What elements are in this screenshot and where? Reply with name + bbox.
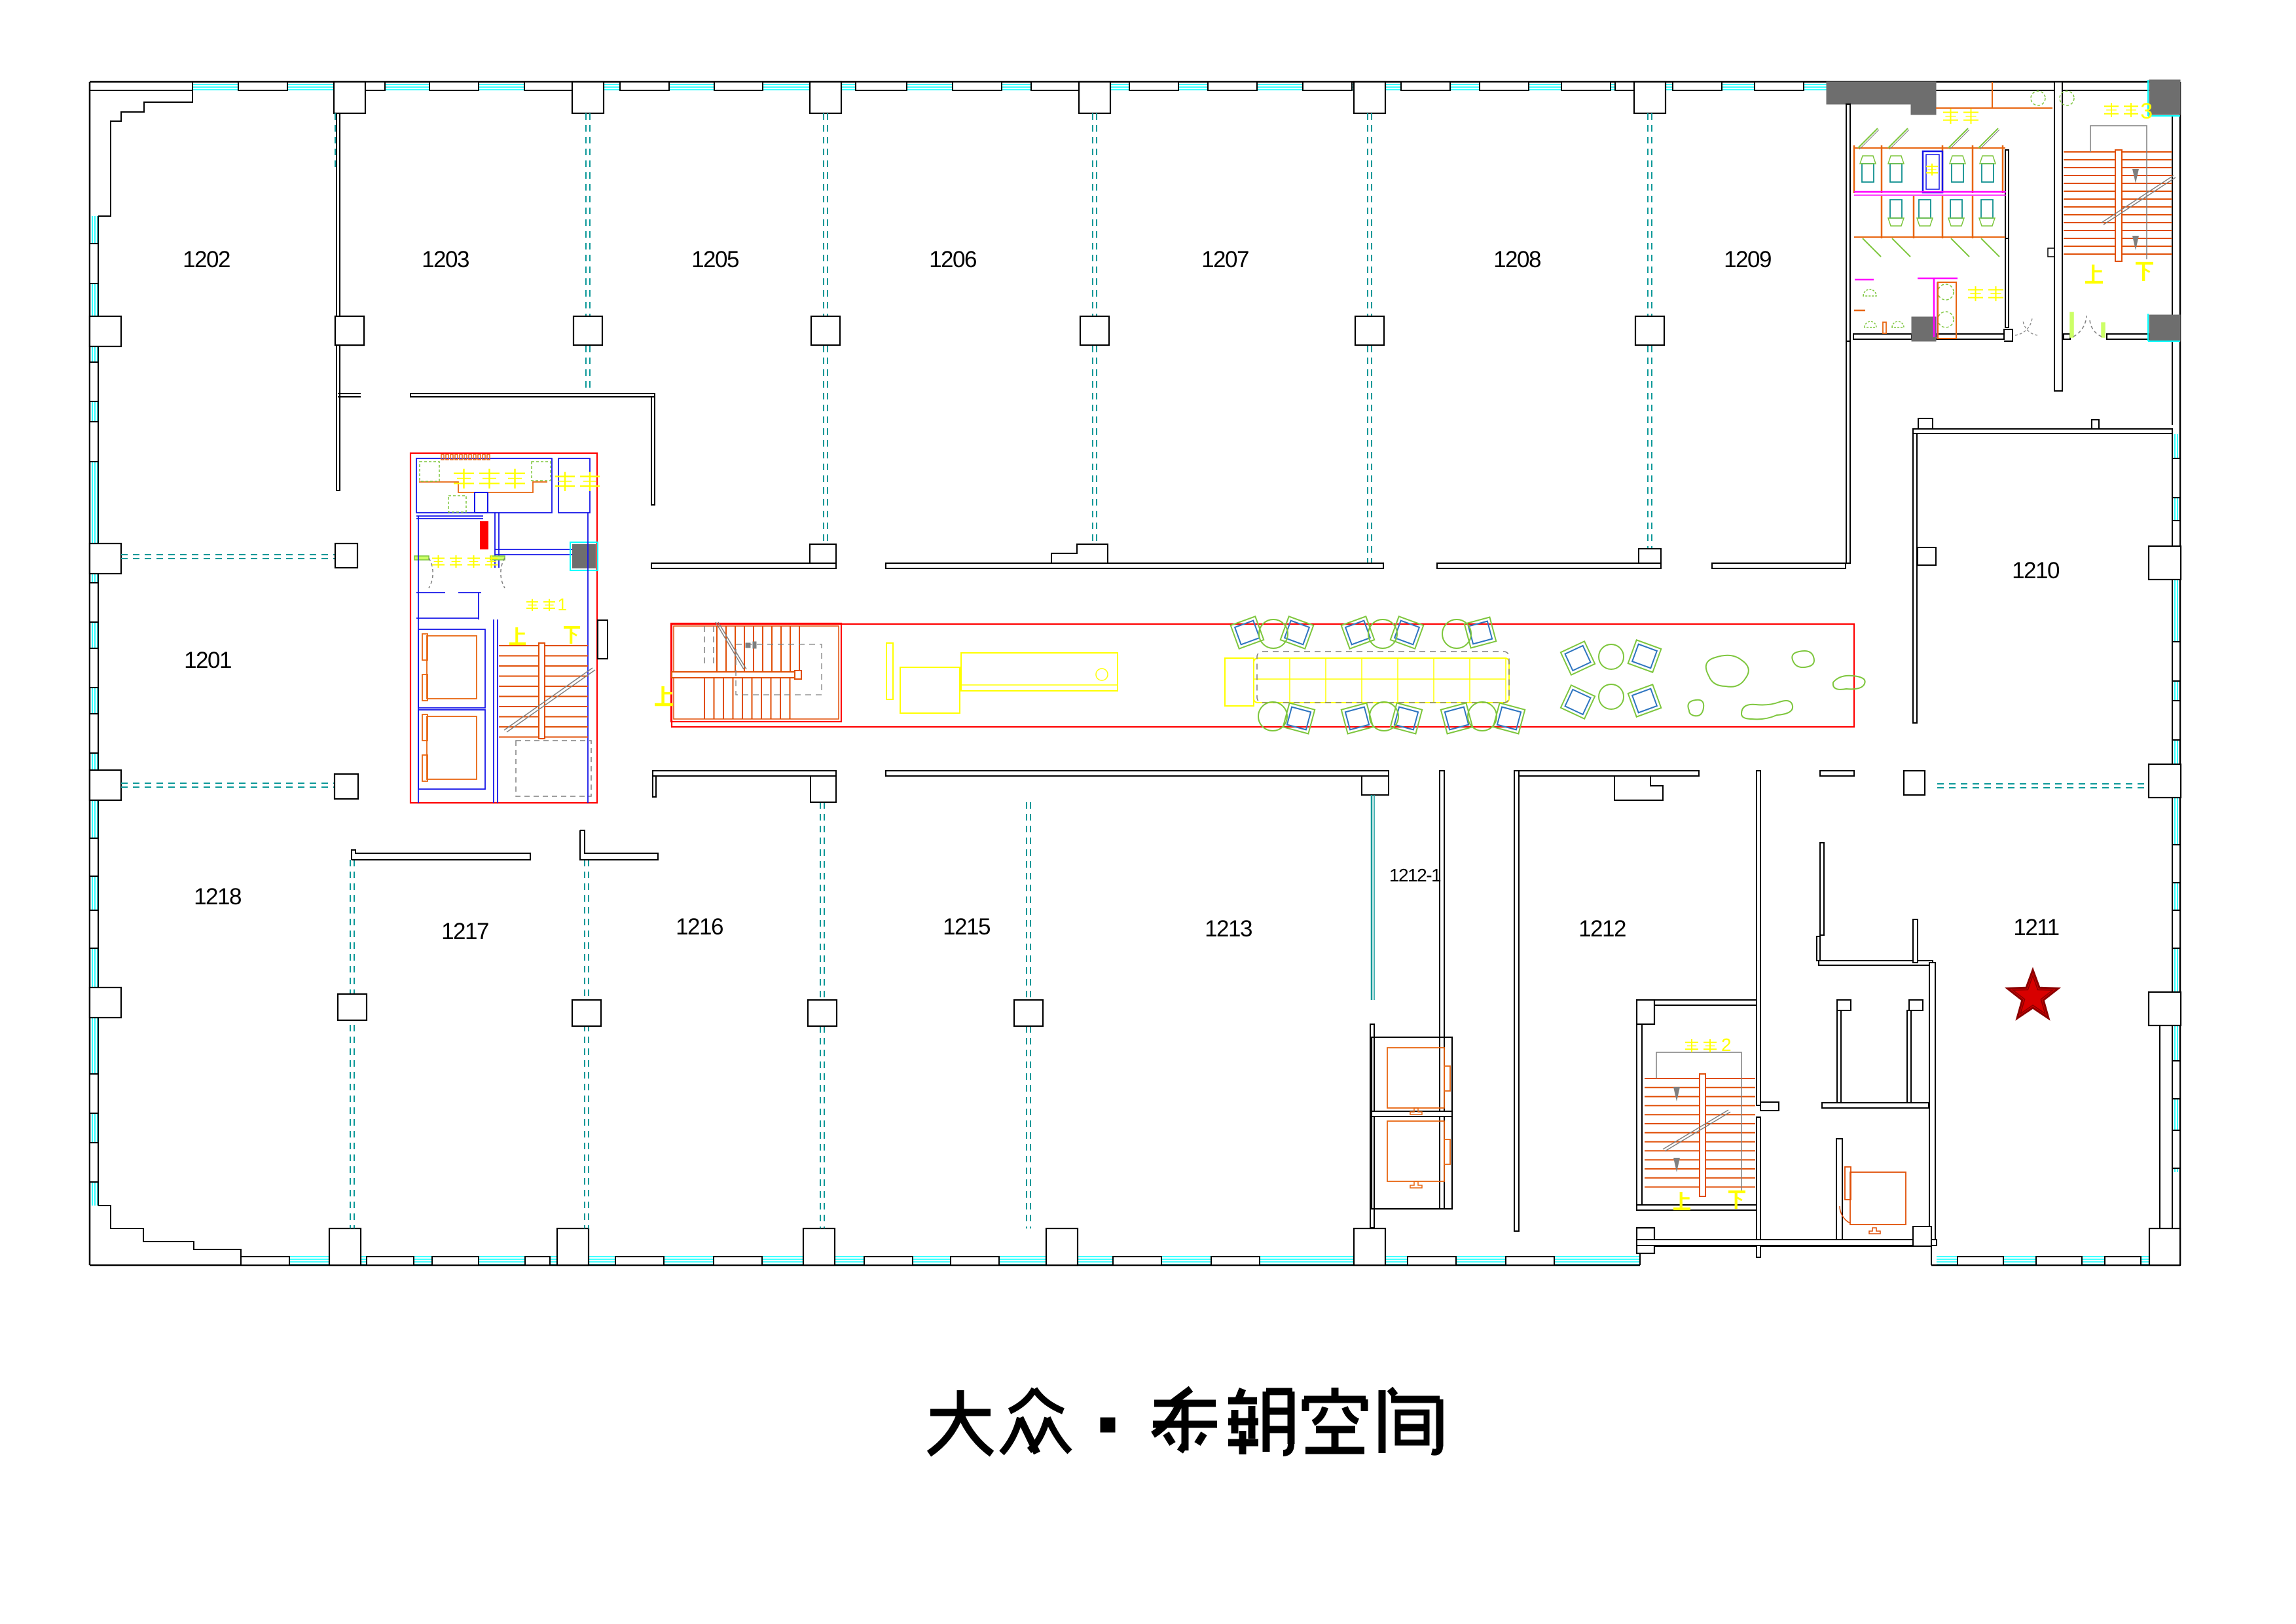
svg-text:1215: 1215	[943, 914, 990, 940]
svg-text:1217: 1217	[441, 919, 488, 944]
svg-text:1205: 1205	[691, 247, 738, 272]
svg-text:1206: 1206	[929, 247, 976, 272]
svg-text:3: 3	[2140, 99, 2152, 124]
svg-text:1208: 1208	[1493, 247, 1540, 272]
svg-text:1212-1: 1212-1	[1389, 865, 1441, 885]
svg-text:2: 2	[1721, 1035, 1731, 1055]
svg-text:1212: 1212	[1578, 916, 1626, 942]
svg-text:1213: 1213	[1205, 916, 1252, 942]
svg-text:1216: 1216	[676, 914, 723, 940]
svg-text:1202: 1202	[183, 247, 230, 272]
svg-text:1201: 1201	[184, 648, 231, 673]
svg-text:1209: 1209	[1724, 247, 1771, 272]
svg-text:1207: 1207	[1201, 247, 1248, 272]
svg-text:1211: 1211	[2013, 915, 2058, 940]
svg-text:1218: 1218	[194, 884, 241, 910]
svg-text:1210: 1210	[2012, 558, 2060, 583]
svg-text:1: 1	[558, 595, 567, 614]
svg-text:1203: 1203	[422, 247, 469, 272]
